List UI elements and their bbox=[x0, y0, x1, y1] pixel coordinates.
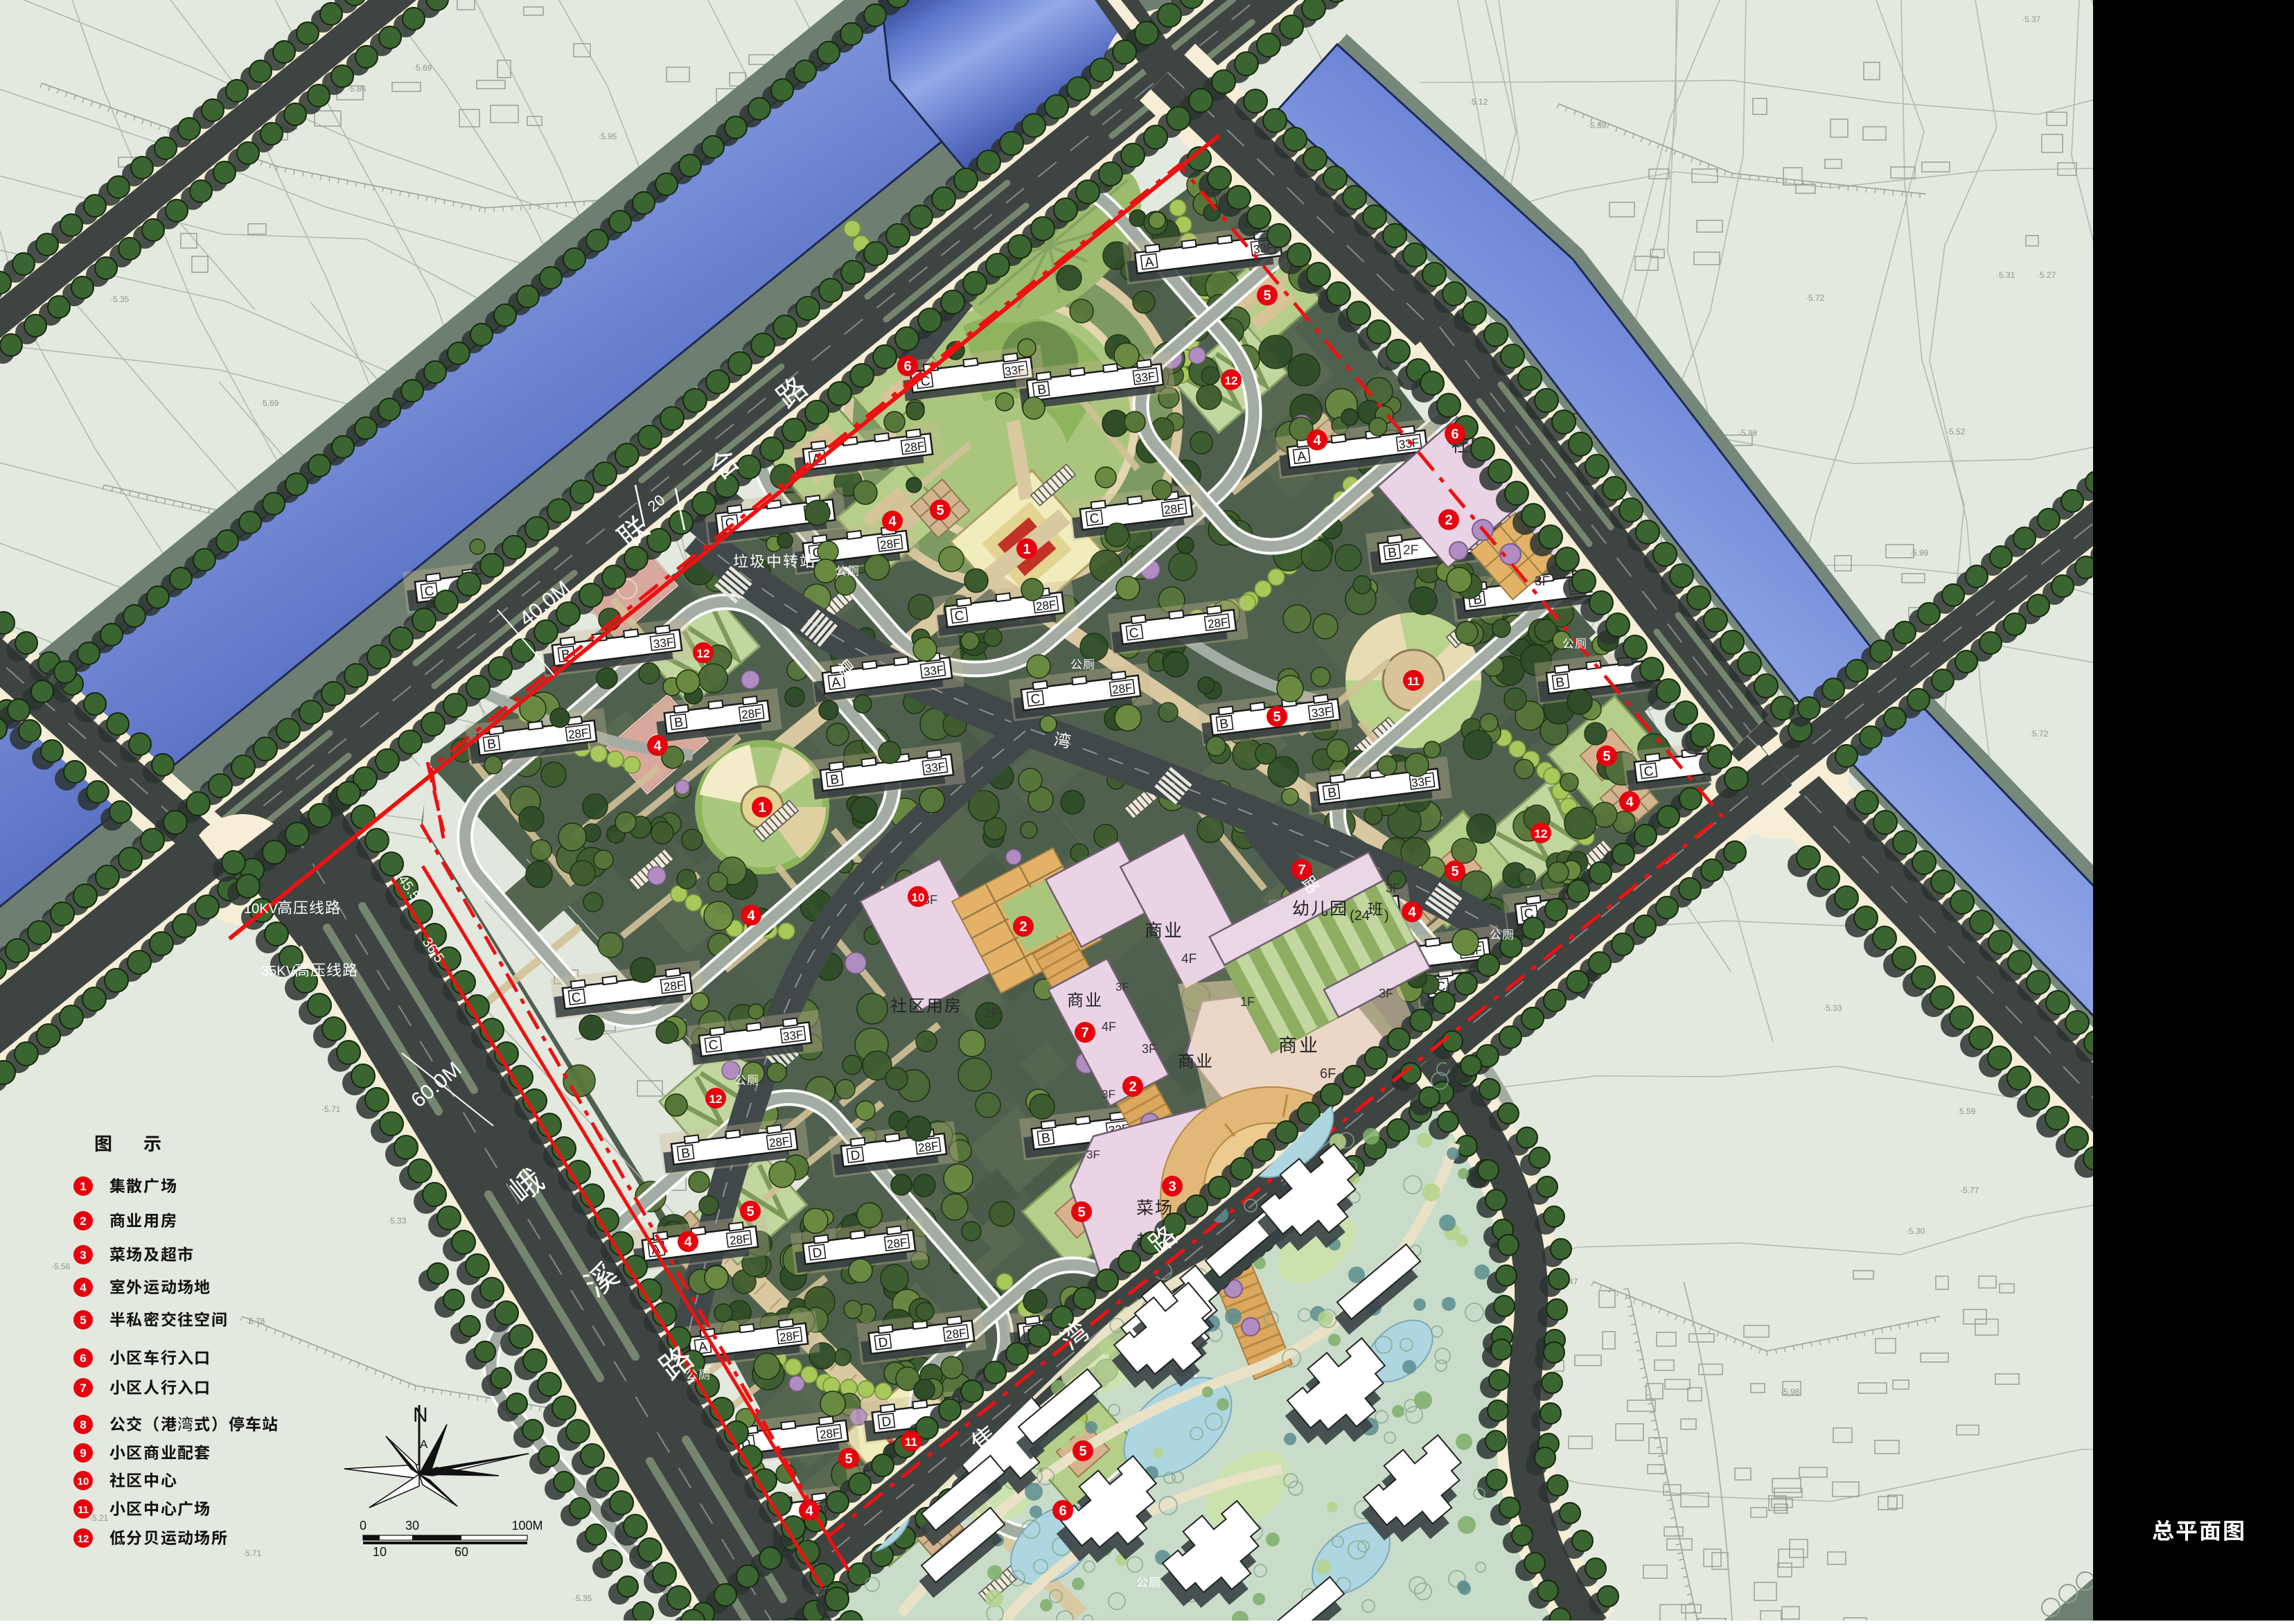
svg-text:B: B bbox=[673, 715, 684, 730]
svg-text:0: 0 bbox=[360, 1519, 367, 1533]
svg-text:C: C bbox=[1030, 691, 1041, 707]
svg-text:B: B bbox=[829, 773, 840, 788]
svg-text:28F: 28F bbox=[819, 1426, 840, 1441]
svg-text:4: 4 bbox=[747, 908, 755, 924]
svg-text:33F: 33F bbox=[1311, 705, 1332, 720]
svg-text:8: 8 bbox=[80, 1418, 86, 1431]
svg-text:·5.69: ·5.69 bbox=[413, 63, 432, 73]
svg-text:33F: 33F bbox=[782, 1028, 804, 1043]
svg-text:·5.77: ·5.77 bbox=[1960, 1185, 1979, 1195]
svg-text:C: C bbox=[1129, 626, 1140, 642]
svg-text:D: D bbox=[850, 1148, 861, 1164]
svg-text:12: 12 bbox=[697, 647, 710, 660]
svg-text:·5.71: ·5.71 bbox=[321, 1104, 341, 1114]
svg-text:28F: 28F bbox=[1207, 615, 1228, 630]
svg-text:28F: 28F bbox=[663, 978, 685, 994]
svg-text:4: 4 bbox=[1625, 795, 1634, 810]
svg-text:33F: 33F bbox=[1398, 436, 1420, 451]
svg-text:B: B bbox=[1219, 716, 1229, 732]
svg-text:4: 4 bbox=[80, 1281, 87, 1294]
svg-text:33F: 33F bbox=[923, 663, 944, 678]
svg-text:): ) bbox=[1384, 908, 1389, 924]
svg-text:2F: 2F bbox=[1403, 543, 1418, 558]
svg-text:5: 5 bbox=[1603, 749, 1610, 764]
svg-text:2: 2 bbox=[1445, 513, 1452, 528]
svg-text:2: 2 bbox=[80, 1215, 86, 1228]
svg-text:B: B bbox=[1041, 1131, 1051, 1146]
svg-text:30: 30 bbox=[405, 1519, 419, 1533]
svg-text:28F: 28F bbox=[741, 706, 762, 721]
svg-text:5: 5 bbox=[1273, 709, 1280, 725]
svg-text:B: B bbox=[1555, 675, 1565, 690]
svg-text:B: B bbox=[680, 1146, 691, 1161]
svg-text:5: 5 bbox=[1079, 1444, 1086, 1459]
svg-text:3F: 3F bbox=[1142, 1042, 1156, 1056]
svg-text:4F: 4F bbox=[1181, 952, 1197, 967]
svg-text:C: C bbox=[1643, 764, 1655, 780]
svg-text:11: 11 bbox=[1407, 675, 1420, 688]
svg-text:3F: 3F bbox=[1086, 1148, 1100, 1161]
svg-text:·5.71: ·5.71 bbox=[242, 1548, 262, 1558]
svg-text:C: C bbox=[424, 584, 435, 600]
svg-text:28F: 28F bbox=[945, 1326, 967, 1341]
svg-text:12: 12 bbox=[1225, 374, 1238, 387]
svg-text:·5.33: ·5.33 bbox=[387, 1216, 407, 1226]
svg-text:D: D bbox=[812, 1246, 823, 1262]
svg-text:1: 1 bbox=[1023, 542, 1030, 557]
svg-text:·5.30: ·5.30 bbox=[1906, 1226, 1925, 1236]
svg-text:3F: 3F bbox=[1386, 881, 1400, 895]
svg-text:·5.59: ·5.59 bbox=[1957, 1106, 1976, 1116]
svg-text:5: 5 bbox=[746, 1204, 754, 1219]
svg-text:6: 6 bbox=[903, 359, 911, 374]
svg-text:6F: 6F bbox=[1320, 1066, 1336, 1082]
svg-text:28F: 28F bbox=[779, 1329, 800, 1344]
svg-text:B: B bbox=[1327, 786, 1337, 801]
svg-text:11: 11 bbox=[78, 1504, 89, 1516]
svg-text:28F: 28F bbox=[567, 726, 589, 741]
svg-text:3F: 3F bbox=[1102, 1088, 1115, 1101]
svg-text:3: 3 bbox=[80, 1248, 86, 1262]
svg-text:·5.35: ·5.35 bbox=[110, 294, 130, 304]
svg-text:A: A bbox=[420, 1438, 428, 1451]
svg-text:·5.27: ·5.27 bbox=[2037, 270, 2056, 280]
svg-text:·5.21: ·5.21 bbox=[89, 1513, 109, 1523]
svg-text:·5.31: ·5.31 bbox=[1996, 270, 2015, 280]
svg-text:33F: 33F bbox=[1134, 369, 1156, 385]
svg-text:5: 5 bbox=[80, 1314, 86, 1327]
svg-text:6: 6 bbox=[1059, 1503, 1066, 1519]
svg-text:1F: 1F bbox=[1240, 995, 1255, 1009]
svg-text:28F: 28F bbox=[879, 536, 901, 551]
svg-text:4: 4 bbox=[888, 514, 897, 529]
svg-text:1: 1 bbox=[80, 1180, 86, 1193]
svg-text:·5.98: ·5.98 bbox=[1738, 428, 1758, 438]
svg-text:7: 7 bbox=[1298, 863, 1305, 878]
svg-text:·5.72: ·5.72 bbox=[2029, 729, 2049, 739]
svg-text:C: C bbox=[708, 1038, 719, 1054]
svg-text:7: 7 bbox=[1081, 1025, 1088, 1041]
svg-text:C: C bbox=[954, 608, 965, 624]
svg-text:·5.99: ·5.99 bbox=[1909, 548, 1929, 558]
svg-text:B: B bbox=[1036, 382, 1047, 398]
svg-text:12: 12 bbox=[78, 1533, 89, 1545]
svg-text:6: 6 bbox=[1451, 427, 1458, 442]
svg-text:4F: 4F bbox=[1102, 1020, 1116, 1034]
svg-text:4: 4 bbox=[684, 1235, 692, 1250]
svg-text:28F: 28F bbox=[1163, 502, 1185, 517]
svg-text:B: B bbox=[486, 736, 497, 752]
svg-text:10KV: 10KV bbox=[244, 901, 279, 917]
svg-text:·5.37: ·5.37 bbox=[2022, 15, 2041, 24]
svg-text:12: 12 bbox=[1535, 827, 1548, 840]
svg-text:·5.35: ·5.35 bbox=[573, 1594, 592, 1603]
svg-text:28F: 28F bbox=[917, 1139, 939, 1154]
svg-text:35KV: 35KV bbox=[261, 964, 296, 979]
svg-text:4: 4 bbox=[805, 1503, 813, 1519]
svg-text:2F: 2F bbox=[984, 1006, 998, 1020]
svg-text:·5.95: ·5.95 bbox=[598, 132, 617, 141]
svg-text:C: C bbox=[571, 990, 582, 1006]
svg-text:28F: 28F bbox=[1035, 598, 1057, 613]
svg-text:·5.72: ·5.72 bbox=[1806, 293, 1825, 303]
svg-text:(24: (24 bbox=[1350, 908, 1370, 924]
svg-text:B: B bbox=[1387, 545, 1397, 561]
svg-text:100M: 100M bbox=[511, 1519, 542, 1533]
svg-text:28F: 28F bbox=[768, 1134, 790, 1149]
svg-text:6: 6 bbox=[80, 1352, 86, 1365]
svg-text:28F: 28F bbox=[886, 1236, 908, 1251]
svg-text:60: 60 bbox=[455, 1545, 468, 1559]
svg-text:·5.52: ·5.52 bbox=[1946, 427, 1966, 436]
svg-text:11: 11 bbox=[905, 1436, 917, 1449]
svg-text:5: 5 bbox=[1263, 288, 1271, 303]
svg-text:3F: 3F bbox=[1115, 980, 1129, 994]
svg-text:10: 10 bbox=[78, 1476, 89, 1488]
svg-text:28F: 28F bbox=[903, 439, 925, 454]
svg-text:C: C bbox=[1089, 511, 1100, 527]
svg-text:5: 5 bbox=[1451, 864, 1458, 879]
svg-text:·5.12: ·5.12 bbox=[1469, 97, 1488, 107]
svg-text:28F: 28F bbox=[1111, 681, 1133, 696]
svg-text:3F: 3F bbox=[1535, 574, 1550, 589]
svg-text:33F: 33F bbox=[924, 760, 946, 775]
svg-text:D: D bbox=[878, 1335, 889, 1351]
svg-text:D: D bbox=[881, 1414, 892, 1430]
svg-text:28F: 28F bbox=[729, 1232, 750, 1247]
svg-text:·5.33: ·5.33 bbox=[1823, 1003, 1842, 1013]
svg-text:2: 2 bbox=[1129, 1079, 1136, 1095]
svg-text:·5.56: ·5.56 bbox=[51, 1262, 71, 1271]
svg-text:1: 1 bbox=[758, 800, 766, 815]
svg-text:N: N bbox=[413, 1404, 428, 1427]
svg-text:2: 2 bbox=[1019, 919, 1027, 935]
svg-text:5: 5 bbox=[845, 1451, 852, 1467]
svg-text:7: 7 bbox=[80, 1382, 86, 1395]
svg-text:5: 5 bbox=[1077, 1205, 1085, 1220]
svg-text:3F: 3F bbox=[1379, 987, 1393, 1000]
svg-text:33F: 33F bbox=[653, 635, 674, 651]
svg-text:·5.69: ·5.69 bbox=[260, 398, 279, 408]
svg-text:10: 10 bbox=[373, 1545, 387, 1559]
svg-text:10: 10 bbox=[912, 891, 925, 904]
svg-text:5: 5 bbox=[936, 503, 944, 518]
svg-text:3: 3 bbox=[1168, 1179, 1176, 1194]
svg-text:4: 4 bbox=[653, 739, 662, 754]
svg-text:4: 4 bbox=[1313, 433, 1321, 448]
svg-text:4: 4 bbox=[1408, 905, 1416, 920]
svg-text:12: 12 bbox=[709, 1093, 723, 1106]
svg-text:9: 9 bbox=[80, 1447, 86, 1460]
